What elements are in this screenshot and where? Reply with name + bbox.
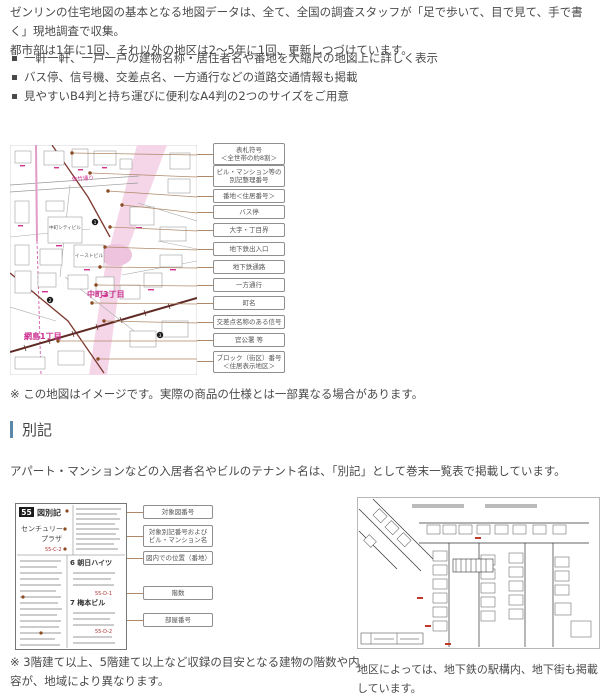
legend-entry-a: 6 朝日ハイツ (70, 558, 112, 567)
leader-line (197, 176, 213, 177)
svg-text:1: 1 (94, 220, 97, 226)
legend-title: 図別記 (37, 508, 61, 518)
bekki-legend-image: 55 図別記 センチュリー プラザ 55-C-2 (15, 503, 127, 650)
leader-line (197, 267, 213, 268)
leader-line (197, 212, 213, 213)
town-a-label: 中町3丁目 (87, 289, 125, 299)
map-callout-subway-passage: 地下鉄通路 (213, 260, 285, 274)
leader-line (197, 340, 213, 341)
floors-note: ※ 3階建て以上、5階建て以上など収録の目安となる建物の階数や内容が、地域により… (10, 653, 360, 691)
map-callout-bekki-number: ビル・マンション等の 別記整理番号 (213, 165, 285, 187)
building-b-label: イーストビル (75, 252, 104, 259)
building-a-label: 中町シティビル (49, 224, 81, 231)
svg-text:3: 3 (159, 333, 162, 339)
legend-callout-target-map-number: 対象図番号 (143, 505, 213, 519)
leader-line (127, 593, 143, 594)
product-description-page: ゼンリンの住宅地図の基本となる地図データは、全て、全国の調査スタッフが「足で歩い… (0, 0, 601, 700)
feature-item: 一軒一軒、一戸一戸の建物名称・居住者名や番地を大縮尺の地図上に詳しく表示 (11, 49, 591, 68)
map-callout-one-way: 一方通行 (213, 278, 285, 292)
map-callout-public-office: 官公署 等 (213, 333, 285, 347)
leader-line (127, 558, 143, 559)
leader-line (127, 512, 143, 513)
leader-line (127, 620, 143, 621)
map-callout-town-name: 町名 (213, 296, 285, 310)
legend-map-code-b: 55-D-1 (95, 591, 112, 597)
feature-item: バス停、信号機、交差点名、一方通行などの道路交通情報も掲載 (11, 68, 591, 87)
legend-page-number: 55 (21, 508, 31, 517)
map-callout-banchi: 番地＜住居番号＞ (213, 189, 285, 203)
bekki-description: アパート・マンションなどの入居者名やビルのテナント名は、「別記」として巻末一覧表… (10, 462, 595, 481)
legend-building-name-line2: プラザ (41, 535, 62, 543)
bekki-section-header: 別記 (10, 419, 52, 440)
underground-map-figure (357, 497, 600, 649)
underground-map-image (357, 497, 600, 649)
map-callout-chome-boundary: 大字・丁目界 (213, 223, 285, 237)
town-b-label: 網島1丁目 (24, 331, 62, 341)
map-callout-bus-stop: バス停 (213, 205, 285, 219)
feature-list: 一軒一軒、一戸一戸の建物名称・居住者名や番地を大縮尺の地図上に詳しく表示 バス停… (11, 49, 591, 106)
leader-line (197, 154, 213, 155)
section-accent-bar (10, 421, 13, 438)
legend-entry-b: 7 梅本ビル (70, 598, 105, 607)
legend-building-name-line1: センチュリー (21, 525, 63, 533)
leader-line (197, 285, 213, 286)
legend-map-code-c: 55-D-2 (95, 629, 112, 635)
map-callout-subway-entrance: 地下鉄出入口 (213, 242, 285, 256)
bekki-legend-figure: 55 図別記 センチュリー プラザ 55-C-2 (15, 503, 127, 650)
leader-line (127, 536, 143, 537)
feature-item: 見やすいB4判と持ち運びに便利なA4判の2つのサイズをご用意 (11, 87, 591, 106)
leader-line (197, 322, 213, 323)
map-callout-hyosatsu: 表札符号 ＜全世帯の約8割＞ (213, 143, 285, 165)
legend-callout-floors: 階数 (143, 586, 213, 600)
legend-map-code-a: 55-C-2 (45, 547, 62, 553)
intro-line-1: ゼンリンの住宅地図の基本となる地図データは、全て、全国の調査スタッフが「足で歩い… (10, 3, 595, 41)
leader-line (197, 249, 213, 250)
svg-text:2: 2 (49, 298, 52, 304)
map-callout-signal: 交差点名称のある信号 (213, 315, 285, 329)
leader-line (197, 361, 213, 362)
map-disclaimer: ※ この地図はイメージです。実際の商品の仕様とは一部異なる場合があります。 (10, 385, 570, 404)
sample-map-image: 中町シティビル イーストビル 佐竹通り 1 2 3 中町3丁目 網島1丁目 (10, 145, 197, 375)
legend-callout-building-name: 対象別記番号および ビル・マンション名 (143, 525, 213, 547)
legend-callout-position: 図内での位置（番地） (143, 551, 213, 565)
leader-line (197, 196, 213, 197)
leader-line (197, 230, 213, 231)
map-callout-block-number: ブロック（街区）番号 ＜住居表示地区＞ (213, 351, 285, 373)
leader-line (197, 303, 213, 304)
section-title: 別記 (22, 419, 52, 440)
sample-map-figure: 中町シティビル イーストビル 佐竹通り 1 2 3 中町3丁目 網島1丁目 (10, 145, 197, 375)
legend-callout-room-number: 部屋番号 (143, 613, 213, 627)
underground-note: 地区によっては、地下鉄の駅構内、地下街も掲載しています。 (357, 660, 600, 698)
